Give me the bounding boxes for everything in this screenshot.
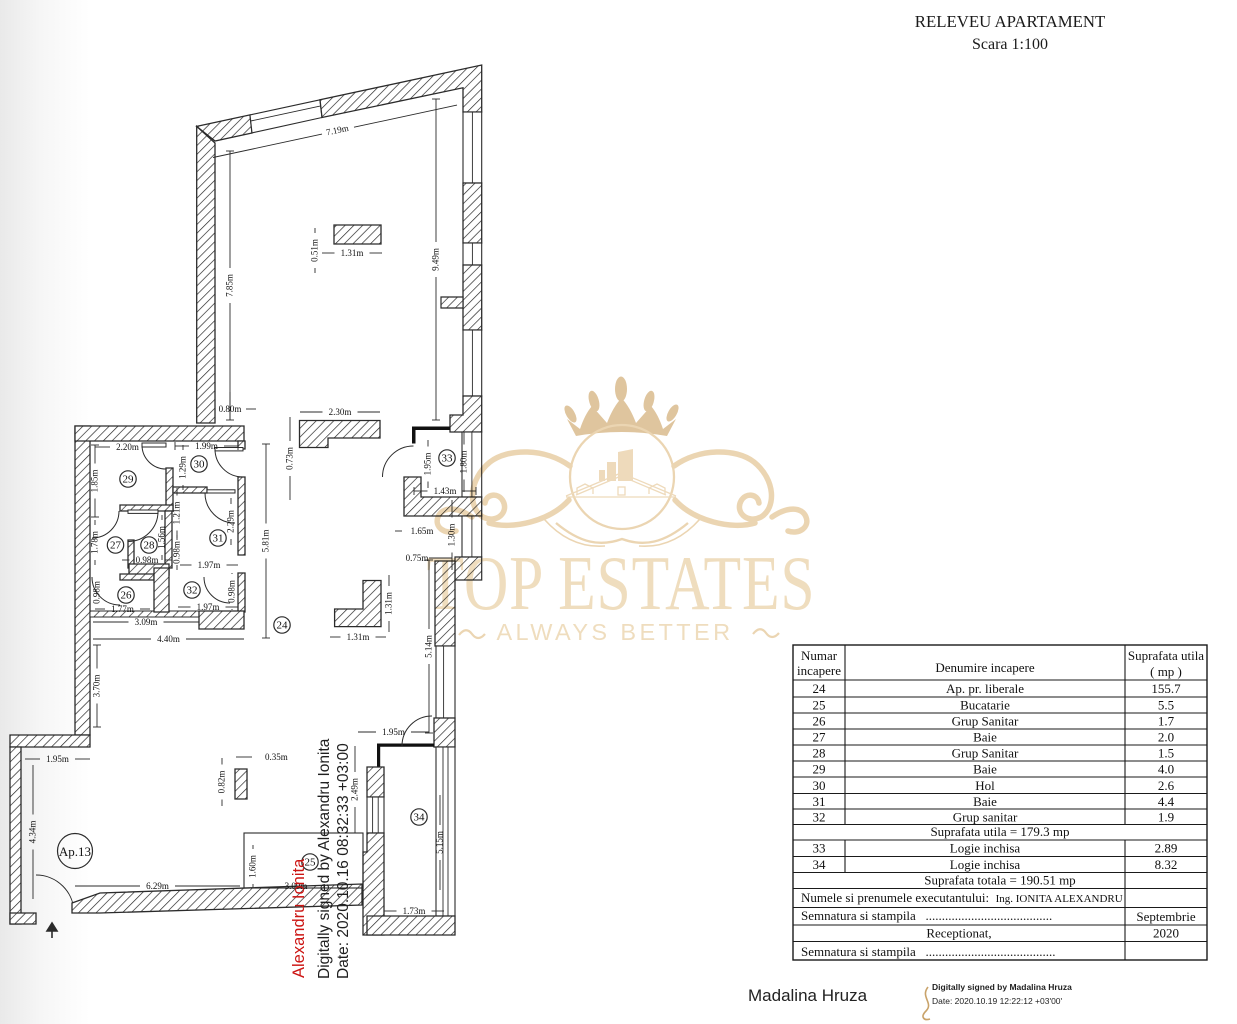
svg-text:TOP ESTATES: TOP ESTATES xyxy=(427,542,816,627)
svg-text:4.34m: 4.34m xyxy=(28,821,38,844)
svg-text:2.29m: 2.29m xyxy=(226,510,236,533)
svg-text:1.95m: 1.95m xyxy=(46,754,69,764)
svg-text:4.4: 4.4 xyxy=(1158,794,1175,809)
svg-text:Semnatura si stampila ......: Semnatura si stampila ..................… xyxy=(801,944,1056,959)
svg-text:26: 26 xyxy=(121,590,133,602)
svg-text:Ap.13: Ap.13 xyxy=(59,844,91,859)
svg-text:155.7: 155.7 xyxy=(1151,681,1181,696)
svg-text:9.49m: 9.49m xyxy=(431,248,441,271)
svg-text:1.95m: 1.95m xyxy=(423,453,433,476)
svg-text:3.70m: 3.70m xyxy=(92,675,102,698)
svg-text:2.20m: 2.20m xyxy=(116,442,139,452)
svg-text:0.82m: 0.82m xyxy=(217,771,227,794)
svg-text:5.81m: 5.81m xyxy=(261,530,271,553)
svg-text:29: 29 xyxy=(123,474,135,486)
svg-text:0.98m: 0.98m xyxy=(136,555,159,565)
svg-text:0.98m: 0.98m xyxy=(172,541,182,564)
svg-text:7.19m: 7.19m xyxy=(325,123,349,138)
svg-text:Semnatura si stampila ......: Semnatura si stampila ..................… xyxy=(801,908,1052,923)
svg-text:2.0: 2.0 xyxy=(1158,730,1174,745)
svg-text:31: 31 xyxy=(813,794,826,809)
svg-text:1.43m: 1.43m xyxy=(434,486,457,496)
svg-text:5.5: 5.5 xyxy=(1158,698,1174,713)
svg-text:1.9: 1.9 xyxy=(1158,809,1174,824)
svg-text:Numar: Numar xyxy=(801,648,838,663)
svg-text:Grup Sanitar: Grup Sanitar xyxy=(952,746,1019,761)
svg-text:1.31m: 1.31m xyxy=(384,592,394,615)
svg-text:1.99m: 1.99m xyxy=(195,441,218,451)
svg-text:1.7: 1.7 xyxy=(1158,714,1175,729)
svg-text:1.31m: 1.31m xyxy=(341,248,364,258)
svg-text:1.95m: 1.95m xyxy=(382,727,405,737)
svg-text:0.35m: 0.35m xyxy=(265,752,288,762)
svg-text:0.75m: 0.75m xyxy=(406,553,429,563)
svg-text:1.56m: 1.56m xyxy=(157,526,167,549)
svg-text:1.97m: 1.97m xyxy=(198,560,221,570)
svg-text:2.89: 2.89 xyxy=(1155,841,1178,856)
svg-text:1.21m: 1.21m xyxy=(172,502,182,525)
svg-text:2.30m: 2.30m xyxy=(329,407,352,417)
svg-text:Ap. pr. liberale: Ap. pr. liberale xyxy=(946,681,1024,696)
svg-text:0.73m: 0.73m xyxy=(285,447,295,470)
svg-text:1.97m: 1.97m xyxy=(197,602,220,612)
svg-text:28: 28 xyxy=(813,746,826,761)
svg-text:1.29m: 1.29m xyxy=(178,456,188,479)
svg-text:33: 33 xyxy=(813,841,826,856)
svg-text:27: 27 xyxy=(110,540,122,552)
svg-text:Denumire incapere: Denumire incapere xyxy=(935,660,1034,675)
svg-text:3.09m: 3.09m xyxy=(135,617,158,627)
svg-text:4.40m: 4.40m xyxy=(157,634,180,644)
svg-text:Hol: Hol xyxy=(975,778,995,793)
svg-text:0.98m: 0.98m xyxy=(92,581,102,604)
svg-text:33: 33 xyxy=(442,453,454,465)
svg-text:Logie inchisa: Logie inchisa xyxy=(950,841,1021,856)
svg-text:1.77m: 1.77m xyxy=(111,604,134,614)
svg-text:34: 34 xyxy=(813,857,827,872)
svg-text:24: 24 xyxy=(813,681,827,696)
svg-text:5.15m: 5.15m xyxy=(435,831,445,854)
svg-text:Baie: Baie xyxy=(973,794,997,809)
svg-text:28: 28 xyxy=(144,540,156,552)
svg-text:26: 26 xyxy=(813,714,827,729)
svg-text:1.60m: 1.60m xyxy=(248,855,258,878)
svg-text:incapere: incapere xyxy=(797,663,841,678)
svg-text:0.98m: 0.98m xyxy=(227,580,237,603)
svg-text:4.0: 4.0 xyxy=(1158,762,1174,777)
svg-text:2020: 2020 xyxy=(1153,926,1179,941)
svg-text:8.32: 8.32 xyxy=(1155,857,1178,872)
svg-text:1.73m: 1.73m xyxy=(403,906,426,916)
svg-text:34: 34 xyxy=(414,812,426,824)
svg-text:29: 29 xyxy=(813,762,826,777)
svg-text:Logie inchisa: Logie inchisa xyxy=(950,857,1021,872)
svg-text:Septembrie: Septembrie xyxy=(1136,909,1195,924)
svg-text:24: 24 xyxy=(277,620,289,632)
svg-text:0.80m: 0.80m xyxy=(219,404,242,414)
svg-text:Bucatarie: Bucatarie xyxy=(960,698,1010,713)
svg-text:0.51m: 0.51m xyxy=(310,239,320,262)
svg-text:1.31m: 1.31m xyxy=(347,632,370,642)
svg-text:Numele si prenumele executantu: Numele si prenumele executantului: Ing. … xyxy=(801,890,1123,905)
svg-text:1.78m: 1.78m xyxy=(90,531,100,554)
svg-text:ALWAYS BETTER: ALWAYS BETTER xyxy=(496,619,733,645)
svg-text:1.80m: 1.80m xyxy=(459,451,469,474)
svg-text:31: 31 xyxy=(213,533,224,545)
svg-text:7.85m: 7.85m xyxy=(225,274,235,297)
svg-text:1.85m: 1.85m xyxy=(90,470,100,493)
svg-text:30: 30 xyxy=(813,778,826,793)
svg-text:Suprafata utila = 179.3 mp: Suprafata utila = 179.3 mp xyxy=(930,824,1069,839)
svg-text:Suprafata utila: Suprafata utila xyxy=(1128,648,1204,663)
svg-text:32: 32 xyxy=(187,585,198,597)
svg-text:5.14m: 5.14m xyxy=(424,635,434,658)
svg-text:( mp ): ( mp ) xyxy=(1150,664,1182,679)
svg-text:27: 27 xyxy=(813,730,827,745)
svg-text:Suprafata totala = 190.51 mp: Suprafata totala = 190.51 mp xyxy=(924,873,1075,888)
svg-text:32: 32 xyxy=(813,809,826,824)
svg-text:2.6: 2.6 xyxy=(1158,778,1175,793)
svg-text:Receptionat,: Receptionat, xyxy=(926,926,991,941)
svg-text:Baie: Baie xyxy=(973,762,997,777)
svg-text:Baie: Baie xyxy=(973,730,997,745)
svg-text:1.65m: 1.65m xyxy=(411,526,434,536)
svg-text:25: 25 xyxy=(813,698,826,713)
svg-text:Grup sanitar: Grup sanitar xyxy=(953,809,1018,824)
svg-text:1.5: 1.5 xyxy=(1158,746,1174,761)
svg-text:Grup Sanitar: Grup Sanitar xyxy=(952,714,1019,729)
svg-text:30: 30 xyxy=(194,459,206,471)
svg-text:6.29m: 6.29m xyxy=(146,881,169,891)
